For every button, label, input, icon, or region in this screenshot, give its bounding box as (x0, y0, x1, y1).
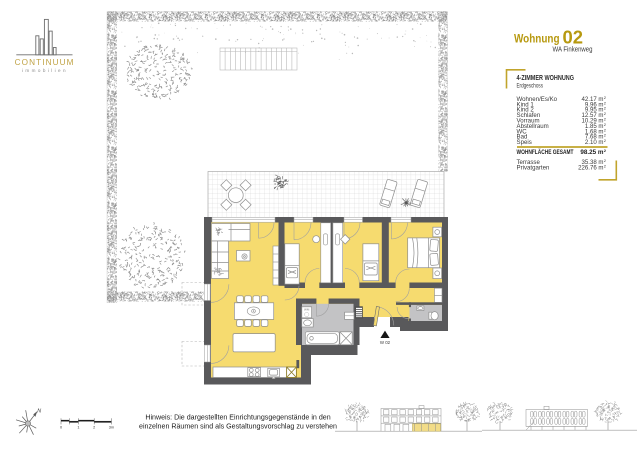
svg-text:02: 02 (563, 26, 584, 47)
svg-text:4-ZIMMER WOHNUNG: 4-ZIMMER WOHNUNG (517, 73, 575, 82)
svg-text:226.76 m: 226.76 m (578, 164, 603, 171)
svg-text:98.25 m: 98.25 m (580, 149, 604, 156)
svg-text:1: 1 (77, 426, 79, 430)
svg-text:WA Finkenweg: WA Finkenweg (553, 46, 593, 53)
svg-text:CONTINUUM: CONTINUUM (15, 58, 75, 67)
svg-text:W 02: W 02 (380, 340, 391, 345)
svg-text:WM: WM (304, 308, 310, 312)
svg-text:N: N (37, 409, 41, 415)
svg-text:Erdgeschoss: Erdgeschoss (517, 83, 544, 90)
svg-text:immobilien: immobilien (22, 68, 68, 73)
svg-text:3m: 3m (109, 426, 114, 430)
svg-text:2.10 m: 2.10 m (585, 139, 604, 146)
svg-text:Privatgarten: Privatgarten (517, 164, 550, 171)
svg-text:Wohnung: Wohnung (514, 32, 560, 46)
svg-text:2: 2 (93, 426, 95, 430)
svg-text:Hinweis: Die dargestellten Ein: Hinweis: Die dargestellten Einrichtungsg… (145, 414, 330, 422)
svg-text:0: 0 (60, 426, 62, 430)
svg-text:einzelnen Räumen sind als Gest: einzelnen Räumen sind als Gestaltungsvor… (139, 422, 337, 430)
svg-text:Speis: Speis (517, 139, 532, 146)
svg-text:WOHNFLÄCHE GESAMT: WOHNFLÄCHE GESAMT (517, 148, 574, 156)
